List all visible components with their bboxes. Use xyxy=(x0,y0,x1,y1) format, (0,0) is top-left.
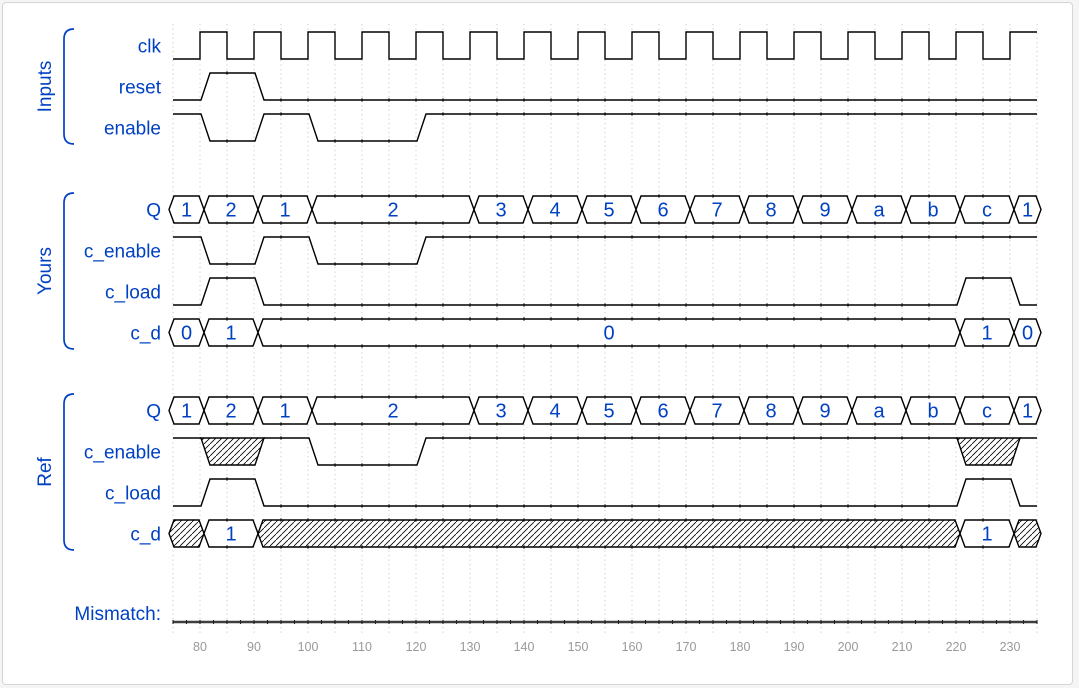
bus-value-label: 1 xyxy=(225,524,236,546)
bus-value-label: 3 xyxy=(495,401,506,423)
bus-value-label: 8 xyxy=(765,401,776,423)
group-brace xyxy=(64,193,74,349)
axis-tick-label: 90 xyxy=(247,640,261,654)
signal-row-clk: clk xyxy=(138,32,1037,59)
signal-label: c_enable xyxy=(84,242,161,263)
group-label: Yours xyxy=(35,247,56,295)
signal-label: Q xyxy=(146,402,161,423)
axis-tick-label: 140 xyxy=(514,640,535,654)
bus-value-label: 1 xyxy=(181,200,192,222)
signal-row-c_d: c_d11 xyxy=(130,518,1041,548)
bus-value-label: c xyxy=(982,200,992,222)
bus-value-label: 0 xyxy=(181,323,192,345)
signal-row-Q: Q12123456789abc1 xyxy=(146,194,1041,224)
signal-label: c_enable xyxy=(84,443,161,464)
bus-value-label: 9 xyxy=(819,200,830,222)
bus-value-label: 9 xyxy=(819,401,830,423)
mismatch-row: Mismatch: xyxy=(74,604,1037,625)
bus-value-label: 1 xyxy=(279,200,290,222)
signal-row-c_load: c_load xyxy=(105,477,1037,507)
signal-group-yours: YoursQ12123456789abc1c_enablec_loadc_d01… xyxy=(35,193,1041,349)
axis-tick-label: 210 xyxy=(892,640,913,654)
dont-care-region xyxy=(201,438,264,465)
axis-tick-label: 160 xyxy=(622,640,643,654)
bus-value-label: b xyxy=(927,200,938,222)
signal-label: c_load xyxy=(105,283,161,304)
signal-row-c_enable: c_enable xyxy=(84,436,1037,466)
axis-tick-label: 150 xyxy=(568,640,589,654)
axis-tick-label: 110 xyxy=(352,640,372,654)
axis-tick-label: 200 xyxy=(838,640,859,654)
bus-value-label: 4 xyxy=(549,401,560,423)
bus-value-label: 6 xyxy=(657,200,668,222)
signal-label: reset xyxy=(119,78,162,99)
bus-value-label: 1 xyxy=(981,323,992,345)
bus-value-label: a xyxy=(873,401,885,423)
signal-row-c_d: c_d01010 xyxy=(130,317,1041,347)
bus-value-label: 2 xyxy=(225,401,236,423)
bus-value-label: 1 xyxy=(279,401,290,423)
mismatch-label: Mismatch: xyxy=(74,604,161,625)
axis-tick-label: 120 xyxy=(406,640,427,654)
bus-value-label: 5 xyxy=(603,200,614,222)
dont-care-region xyxy=(957,438,1020,465)
signal-row-c_load: c_load xyxy=(105,276,1037,306)
bus-value-label: 1 xyxy=(181,401,192,423)
signal-row-enable: enable xyxy=(104,112,1037,142)
signal-row-c_enable: c_enable xyxy=(84,235,1037,265)
bus-value-label: 6 xyxy=(657,401,668,423)
signal-label: c_d xyxy=(130,324,161,345)
bus-value-label: 1 xyxy=(981,524,992,546)
bus-value-label: 2 xyxy=(387,401,398,423)
axis-tick-label: 80 xyxy=(193,640,207,654)
signal-label: clk xyxy=(138,37,162,58)
bus-value-label: 1 xyxy=(225,323,236,345)
signal-group-inputs: Inputsclkresetenable xyxy=(35,29,1037,144)
signal-group-ref: RefQ12123456789abc1c_enablec_loadc_d11 xyxy=(35,394,1041,550)
axis-tick-label: 180 xyxy=(730,640,751,654)
bus-value-label: 4 xyxy=(549,200,560,222)
timing-diagram: InputsclkresetenableYoursQ12123456789abc… xyxy=(0,0,1079,688)
signal-label: c_d xyxy=(130,525,161,546)
bus-value-label: 2 xyxy=(225,200,236,222)
bus-value-label: 1 xyxy=(1022,200,1033,222)
bus-value-label: 3 xyxy=(495,200,506,222)
group-brace xyxy=(64,29,74,144)
signal-label: c_load xyxy=(105,484,161,505)
signal-row-Q: Q12123456789abc1 xyxy=(146,395,1041,425)
bus-value-label: a xyxy=(873,200,885,222)
axis-tick-label: 190 xyxy=(784,640,805,654)
bus-value-label: 0 xyxy=(1022,323,1033,345)
axis-tick-label: 170 xyxy=(676,640,697,654)
bus-value-label: 2 xyxy=(387,200,398,222)
bus-value-label: 7 xyxy=(711,401,722,423)
axis-tick-label: 230 xyxy=(1000,640,1021,654)
group-label: Ref xyxy=(35,457,56,487)
signal-label: Q xyxy=(146,201,161,222)
bus-value-label: b xyxy=(927,401,938,423)
group-brace xyxy=(64,394,74,550)
time-axis: 8090100110120130140150160170180190200210… xyxy=(193,640,1020,654)
axis-tick-label: 100 xyxy=(298,640,319,654)
bus-value-label: 0 xyxy=(603,323,614,345)
group-label: Inputs xyxy=(35,61,56,113)
axis-tick-label: 130 xyxy=(460,640,481,654)
bus-value-label: 7 xyxy=(711,200,722,222)
bus-value-label: 8 xyxy=(765,200,776,222)
bus-value-label: 1 xyxy=(1022,401,1033,423)
axis-tick-label: 220 xyxy=(946,640,967,654)
bus-value-label: c xyxy=(982,401,992,423)
signal-label: enable xyxy=(104,119,161,140)
bus-value-label: 5 xyxy=(603,401,614,423)
